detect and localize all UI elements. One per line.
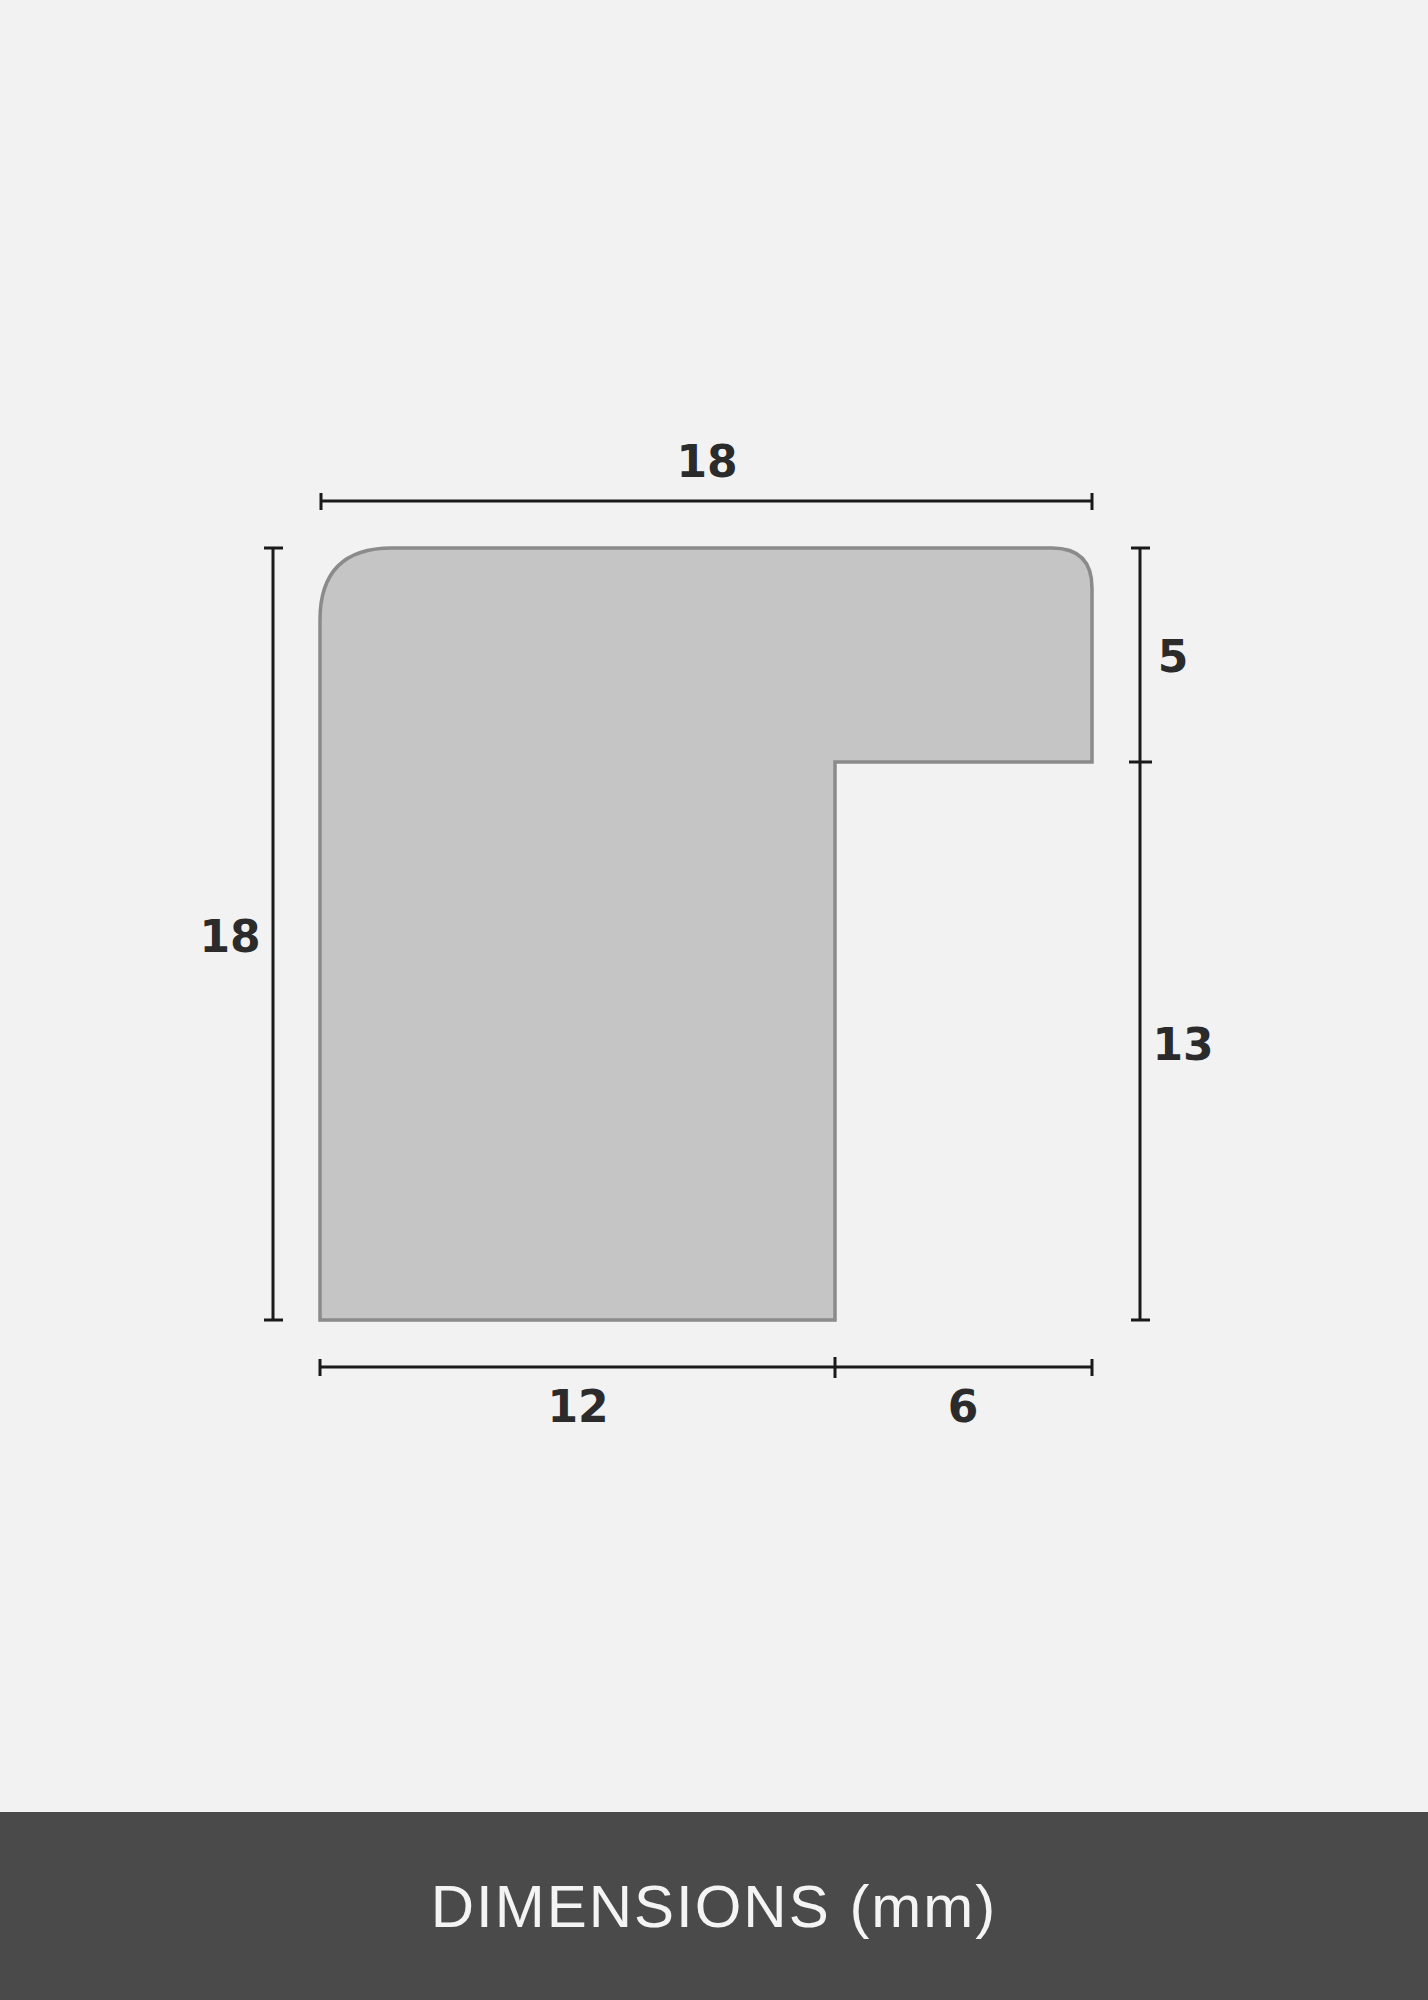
diagram-canvas: 18 18 5 13 12 6 DIMENSIONS (mm) xyxy=(0,0,1428,2000)
profile-cross-section xyxy=(320,548,1092,1320)
footer-bar: DIMENSIONS (mm) xyxy=(0,1812,1428,2000)
footer-title: DIMENSIONS (mm) xyxy=(431,1872,998,1941)
top-width-label: 18 xyxy=(676,440,737,484)
profile-diagram-svg xyxy=(0,0,1428,2000)
bottom-right-label: 6 xyxy=(948,1385,979,1429)
left-height-label: 18 xyxy=(199,915,260,959)
right-lower-label: 13 xyxy=(1152,1023,1213,1067)
right-dimension-line xyxy=(1129,548,1152,1320)
bottom-dimension-line xyxy=(320,1357,1092,1378)
top-dimension-line xyxy=(321,493,1092,510)
right-upper-label: 5 xyxy=(1158,635,1189,679)
left-dimension-line xyxy=(264,548,283,1320)
bottom-left-label: 12 xyxy=(547,1385,608,1429)
